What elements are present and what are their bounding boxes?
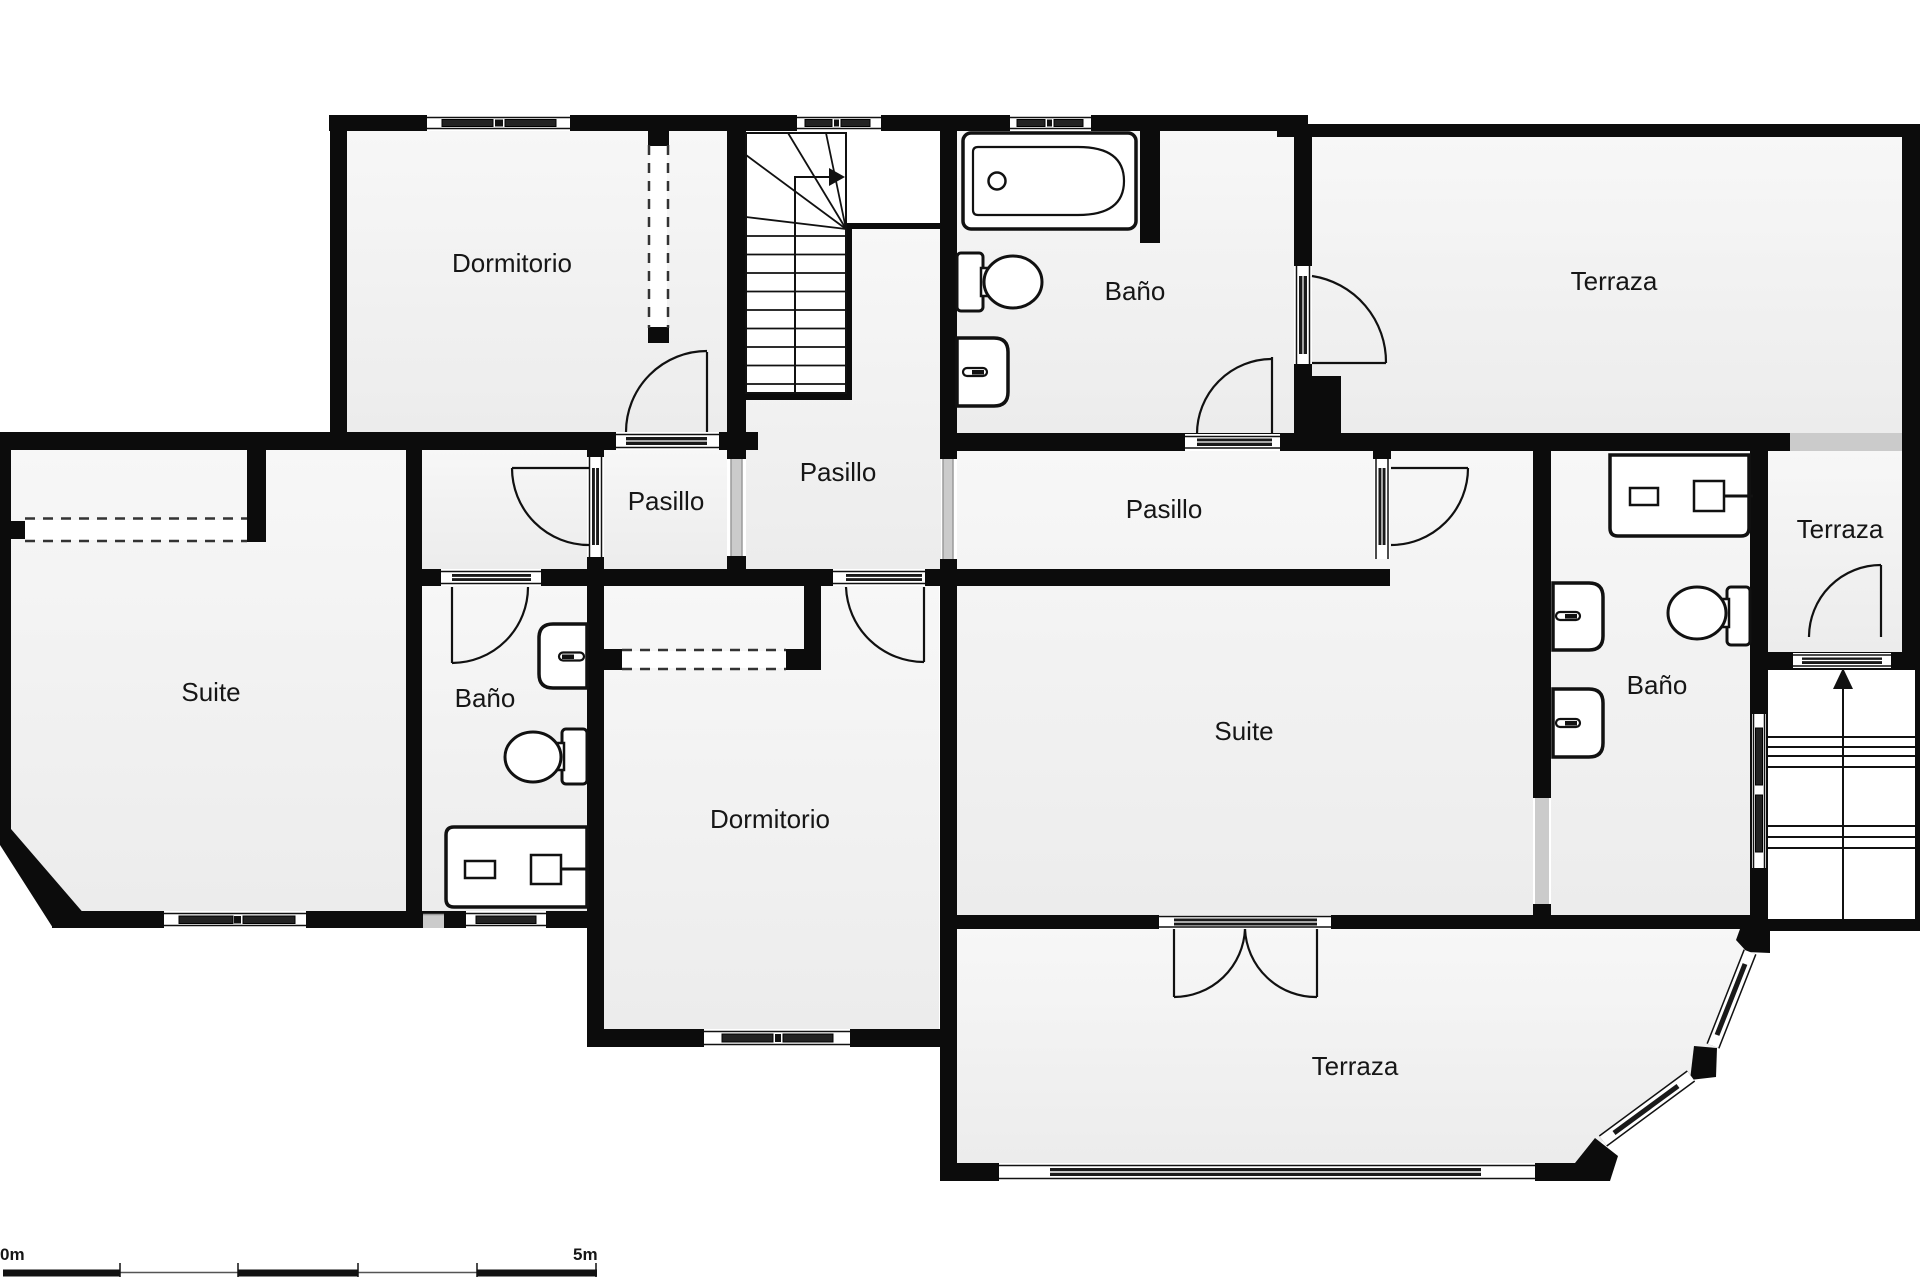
svg-text:Pasillo: Pasillo bbox=[628, 486, 705, 516]
svg-text:5m: 5m bbox=[573, 1245, 598, 1264]
svg-text:Terraza: Terraza bbox=[1571, 266, 1658, 296]
svg-text:Baño: Baño bbox=[1105, 276, 1166, 306]
svg-text:Terraza: Terraza bbox=[1797, 514, 1884, 544]
svg-text:0m: 0m bbox=[0, 1245, 25, 1264]
svg-text:Dormitorio: Dormitorio bbox=[710, 804, 830, 834]
svg-text:Baño: Baño bbox=[1627, 670, 1688, 700]
svg-text:Dormitorio: Dormitorio bbox=[452, 248, 572, 278]
svg-text:Pasillo: Pasillo bbox=[800, 457, 877, 487]
svg-text:Suite: Suite bbox=[181, 677, 240, 707]
svg-text:Pasillo: Pasillo bbox=[1126, 494, 1203, 524]
svg-text:Terraza: Terraza bbox=[1312, 1051, 1399, 1081]
svg-text:Baño: Baño bbox=[455, 683, 516, 713]
svg-text:Suite: Suite bbox=[1214, 716, 1273, 746]
